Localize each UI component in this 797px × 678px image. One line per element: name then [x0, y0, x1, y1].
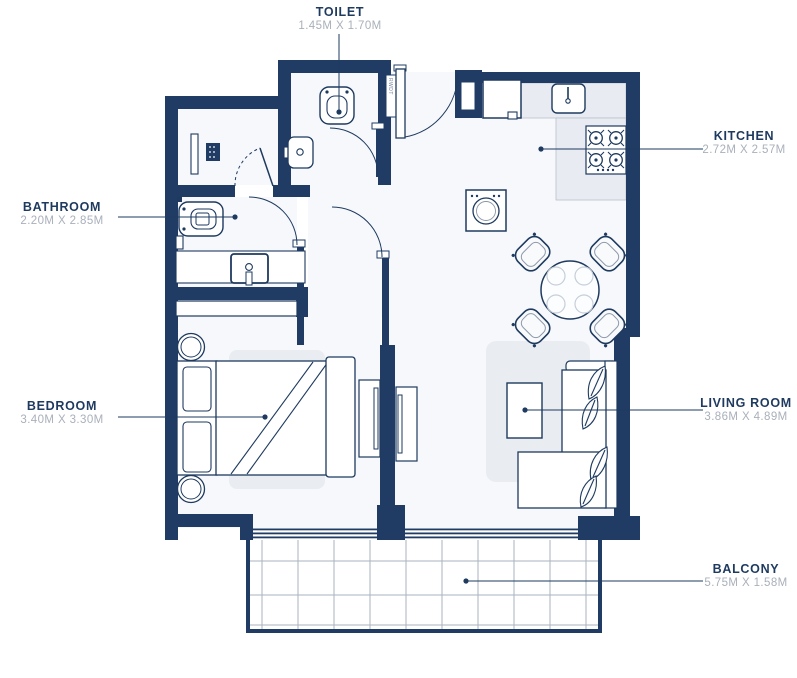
- shaft-label: RWDT: [387, 78, 393, 116]
- room-dims: 5.75M X 1.58M: [700, 577, 792, 590]
- wall-toilet-left: [278, 60, 291, 197]
- window-living-2: [405, 533, 578, 535]
- wall-bath-top-a: [165, 185, 235, 197]
- utility-appliance: [206, 143, 220, 161]
- floorplan-svg: [0, 0, 797, 678]
- label-bedroom: BEDROOM 3.40M X 3.30M: [14, 399, 110, 428]
- room-name: BALCONY: [700, 562, 792, 576]
- wall-left: [165, 96, 178, 540]
- balcony-wall-bottom: [246, 629, 602, 633]
- vanity-faucet: [246, 264, 253, 271]
- floor-plan: TOILET 1.45M X 1.70M KITCHEN 2.72M X 2.5…: [0, 0, 797, 678]
- room-name: BATHROOM: [14, 200, 110, 214]
- balcony-wall-left: [246, 538, 250, 633]
- wall-divider-foot: [377, 505, 405, 540]
- fridge-notch: [508, 112, 517, 119]
- utility-shelf: [191, 134, 198, 174]
- room-name: BEDROOM: [14, 399, 110, 413]
- pillow-2: [183, 422, 211, 472]
- wardrobe: [176, 301, 297, 316]
- window-living-1: [405, 529, 578, 531]
- wall-corner-bottom-right: [578, 516, 640, 540]
- window-bedroom-3: [252, 537, 380, 539]
- pillow-1: [183, 367, 211, 411]
- wall-bedroom-bottom: [165, 514, 253, 527]
- wall-closet-pier: [296, 300, 308, 317]
- wall-bath-right-jamb: [295, 185, 308, 197]
- room-dims: 3.40M X 3.30M: [14, 414, 110, 427]
- door-stop: [177, 197, 182, 202]
- wall-balcony-pier-left: [240, 514, 253, 540]
- room-name: KITCHEN: [700, 129, 788, 143]
- room-name: TOILET: [280, 5, 400, 19]
- room-dims: 2.20M X 2.85M: [14, 215, 110, 228]
- toilet-door-leaf: [376, 127, 383, 177]
- shaft-niche: [461, 82, 475, 110]
- label-living-room: LIVING ROOM 3.86M X 4.89M: [700, 396, 792, 425]
- label-toilet: TOILET 1.45M X 1.70M: [280, 5, 400, 34]
- vanity-faucet-stem: [246, 272, 252, 285]
- sofa-back: [605, 361, 617, 508]
- room-dims: 1.45M X 1.70M: [280, 20, 400, 33]
- wall-stub-bedroom-door: [382, 257, 389, 345]
- label-balcony: BALCONY 5.75M X 1.58M: [700, 562, 792, 591]
- wall-divider: [380, 345, 395, 505]
- wall-right-upper: [626, 72, 640, 335]
- bathroom-wc-flush: [196, 213, 209, 225]
- label-kitchen: KITCHEN 2.72M X 2.57M: [700, 129, 788, 158]
- room-name: LIVING ROOM: [700, 396, 792, 410]
- wall-toilet-top: [278, 60, 391, 73]
- toilet-basin-faucet: [297, 149, 303, 155]
- window-bedroom-1: [252, 529, 380, 531]
- hinge-cap-bedroom: [377, 251, 389, 258]
- paper-holder: [176, 236, 183, 249]
- room-dims: 2.72M X 2.57M: [700, 144, 788, 157]
- tv-bedroom: [374, 388, 378, 449]
- wall-utility-top: [165, 96, 290, 109]
- label-bathroom: BATHROOM 2.20M X 2.85M: [14, 200, 110, 229]
- wall-bath-bottom: [165, 287, 308, 300]
- hinge-cap-toilet: [372, 123, 384, 129]
- balcony-wall-right: [598, 538, 602, 633]
- entry-door-leaf: [396, 69, 405, 138]
- tv-living: [398, 395, 402, 453]
- hinge-cap-bath: [293, 240, 305, 247]
- balcony-floor: [250, 538, 598, 631]
- room-dims: 3.86M X 4.89M: [700, 411, 792, 424]
- toilet-wc-seat: [327, 96, 347, 118]
- bed-foot-bench: [326, 357, 355, 477]
- window-living-3: [405, 537, 578, 539]
- window-bedroom-2: [252, 533, 380, 535]
